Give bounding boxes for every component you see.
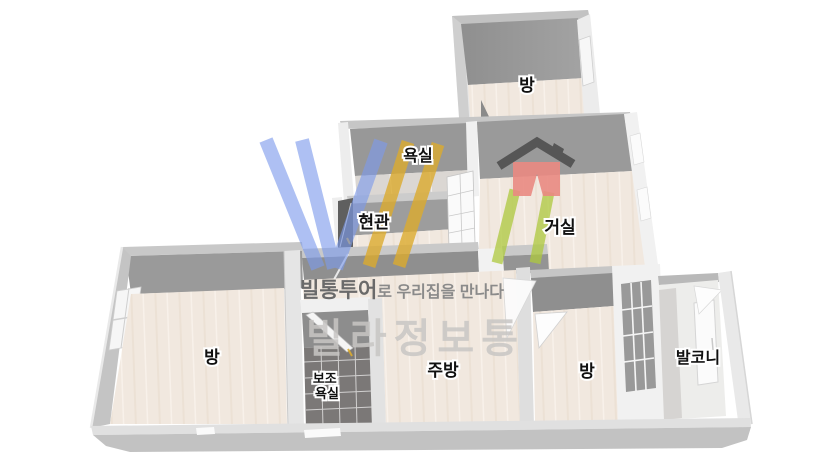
label-entrance: 현관 [358, 213, 390, 232]
room-bedroom-left [110, 288, 287, 424]
window-wall [612, 264, 666, 424]
label-bedroom-top: 방 [519, 76, 535, 95]
front-wall-door-notch-1 [196, 427, 215, 435]
bedroom-left-floor [110, 288, 287, 424]
floorplan-image: 빌통투어로 우리집을 만나다 빌라정보통 방 욕실 현관 거실 방 보조 욕실 … [0, 0, 840, 472]
balcony-door [694, 300, 718, 385]
floorplan-canvas: 빌통투어로 우리집을 만나다 빌라정보통 방 욕실 현관 거실 방 보조 욕실 … [0, 0, 840, 472]
label-bedroom-right: 방 [579, 362, 595, 381]
room-balcony [658, 273, 726, 420]
label-living: 거실 [544, 218, 575, 237]
label-kitchen: 주방 [427, 361, 459, 380]
label-bathroom: 욕실 [403, 147, 432, 165]
bedroom-right-backwall-face [531, 273, 614, 312]
watermark-text: 빌통투어로 우리집을 만나다 빌라정보통 [300, 279, 525, 361]
bedroom-top-back-wall [461, 18, 584, 85]
label-bedroom-left: 방 [204, 348, 220, 367]
label-balcony: 발코니 [676, 349, 720, 367]
tier3-left-backwall-face [126, 251, 303, 294]
watermark-brand: 빌라정보통 [306, 317, 525, 361]
label-aux-bathroom: 보조 욕실 [313, 370, 341, 401]
room-bedroom-right [530, 266, 618, 424]
